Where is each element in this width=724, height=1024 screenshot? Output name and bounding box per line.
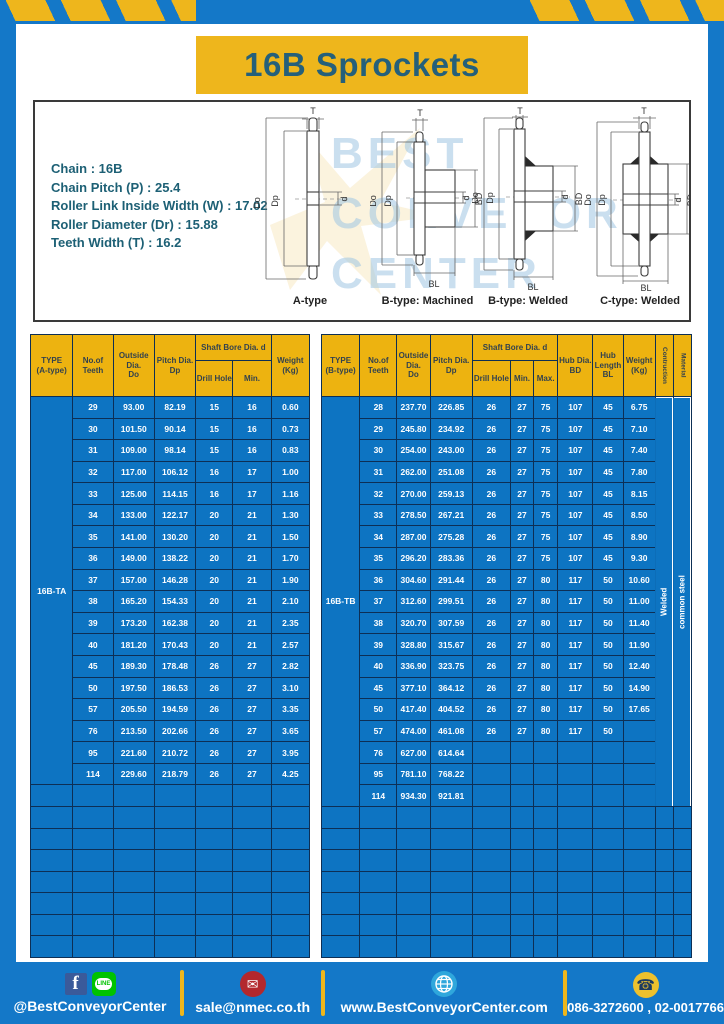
empty-cell [322,893,360,915]
svg-text:BD: BD [686,193,691,206]
empty-cell [322,806,360,828]
table-row: 32270.00259.13262775107458.15 [322,483,692,505]
header-pitch-dia: Pitch Dia.Dp [430,335,472,397]
header-min: Min. [510,361,533,397]
table-cell: 39 [360,634,397,656]
empty-cell [655,850,673,872]
empty-cell [472,850,510,872]
table-cell: 3.10 [271,677,309,699]
table-row: 57474.00461.0826278011750 [322,720,692,742]
empty-cell [31,785,73,807]
empty-cell [233,806,271,828]
svg-text:BL: BL [527,282,538,292]
svg-text:Do: Do [370,195,378,207]
header-shaft-bore-group: Shaft Bore Dia. d [472,335,557,361]
table-cell: 117 [558,634,593,656]
table-cell: 614.64 [430,742,472,764]
empty-cell [73,893,113,915]
empty-cell [558,850,593,872]
table-cell: 17 [233,483,271,505]
table-row: 30101.5090.1415160.73 [31,418,310,440]
table-cell: 291.44 [430,569,472,591]
table-cell: 27 [510,569,533,591]
table-cell: 76 [73,720,113,742]
empty-cell [31,850,73,872]
globe-icon[interactable] [431,971,457,997]
table-cell: 26 [196,742,233,764]
table-cell: 213.50 [113,720,154,742]
empty-cell [593,850,623,872]
empty-cell [510,871,533,893]
empty-cell [113,785,154,807]
empty-cell [397,936,430,958]
table-cell: 10.60 [623,569,655,591]
table-cell: 170.43 [154,634,195,656]
table-cell: 37 [73,569,113,591]
empty-cell [593,893,623,915]
empty-cell [593,828,623,850]
table-cell: 15 [196,397,233,419]
table-cell: 117 [558,591,593,613]
table-cell [593,785,623,807]
table-cell: 323.75 [430,655,472,677]
empty-cell [31,828,73,850]
empty-cell [113,871,154,893]
table-cell [534,763,558,785]
table-cell: 8.90 [623,526,655,548]
empty-cell [196,871,233,893]
empty-cell [360,936,397,958]
empty-cell [593,871,623,893]
footer-email-section: ✉ sale@nmec.co.th [184,962,321,1024]
page: 16B Sprockets BEST CONVEYOR CENTER Chain… [16,24,708,962]
empty-cell [113,850,154,872]
table-cell: 80 [534,591,558,613]
table-cell: 21 [233,634,271,656]
table-cell: 320.70 [397,612,430,634]
empty-cell [154,850,195,872]
table-cell: 101.50 [113,418,154,440]
svg-text:T: T [641,106,647,116]
table-cell [623,742,655,764]
table-cell: 287.00 [397,526,430,548]
table-cell: 29 [360,418,397,440]
line-icon[interactable]: LINE [92,972,116,996]
table-cell: 133.00 [113,504,154,526]
empty-cell [534,914,558,936]
email-address[interactable]: sale@nmec.co.th [195,999,310,1015]
table-cell: 98.14 [154,440,195,462]
table-cell: 7.10 [623,418,655,440]
empty-cell [360,914,397,936]
empty-cell [673,893,691,915]
table-cell: 107 [558,397,593,419]
table-cell: 2.35 [271,612,309,634]
empty-cell [397,914,430,936]
empty-cell [397,871,430,893]
table-cell: 146.28 [154,569,195,591]
empty-cell [673,828,691,850]
title-banner: 16B Sprockets [196,36,528,94]
table-cell: 50 [593,591,623,613]
empty-cell [558,893,593,915]
header-pitch-dia: Pitch Dia.Dp [154,335,195,397]
spec-line-chain: Chain : 16B [51,160,268,179]
spec-line-roller-width: Roller Link Inside Width (W) : 17.02 [51,197,268,216]
facebook-icon[interactable]: f [65,973,87,995]
drawing-label-c-type-welded: C-type: Welded [583,295,691,307]
phone-numbers[interactable]: 086-3272600 , 02-0017766 [567,1000,724,1015]
table-cell: 404.52 [430,699,472,721]
table-cell: 107 [558,440,593,462]
line-bubble: LINE [95,978,112,990]
table-cell: 26 [472,461,510,483]
table-cell: 45 [593,526,623,548]
table-cell: 1.16 [271,483,309,505]
table-cell: 80 [534,720,558,742]
empty-cell [593,806,623,828]
empty-cell [430,828,472,850]
table-cell: 38 [73,591,113,613]
table-cell: 1.90 [271,569,309,591]
table-cell: 0.83 [271,440,309,462]
empty-row [31,785,310,807]
table-cell: 32 [73,461,113,483]
drawing-label-a-type: A-type [250,295,370,307]
table-cell: 80 [534,634,558,656]
table-cell: 226.85 [430,397,472,419]
table-cell [510,763,533,785]
empty-cell [271,828,309,850]
empty-cell [655,828,673,850]
table-cell: 33 [360,504,397,526]
table-cell: 45 [593,461,623,483]
table-cell: 27 [233,655,271,677]
table-cell: 107 [558,418,593,440]
svg-text:d: d [673,197,683,202]
drawing-b-type-welded: T Do Dp d BD [472,106,584,307]
svg-text:Dp: Dp [485,192,495,204]
table-cell: 50 [593,677,623,699]
table-cell: 40 [73,634,113,656]
table-cell: 1.50 [271,526,309,548]
table-cell: 237.70 [397,397,430,419]
table-cell: 130.20 [154,526,195,548]
empty-cell [154,914,195,936]
table-a-type: TYPE(A-type) No.ofTeeth OutsideDia.Do Pi… [30,334,310,958]
table-cell: 27 [510,612,533,634]
empty-cell [430,914,472,936]
empty-cell [113,893,154,915]
svg-text:Do: Do [472,192,480,204]
table-cell: 474.00 [397,720,430,742]
table-cell: 278.50 [397,504,430,526]
table-cell: 114 [73,763,113,785]
table-cell: 26 [472,440,510,462]
hazard-stripes-right [524,0,724,21]
table-cell: 210.72 [154,742,195,764]
table-cell [558,742,593,764]
empty-cell [154,828,195,850]
empty-cell [623,936,655,958]
header-teeth: No.ofTeeth [360,335,397,397]
construction-cell: Welded [655,397,673,807]
table-cell: 31 [73,440,113,462]
empty-cell [430,806,472,828]
table-cell: 20 [196,634,233,656]
table-cell: 75 [534,483,558,505]
table-cell: 245.80 [397,418,430,440]
table-cell: 417.40 [397,699,430,721]
empty-cell [233,871,271,893]
empty-cell [593,936,623,958]
svg-text:BL: BL [640,283,651,292]
empty-row [322,871,692,893]
table-cell [558,785,593,807]
table-cell: 57 [73,699,113,721]
table-cell: 106.12 [154,461,195,483]
header-material: Material [673,335,691,397]
empty-cell [322,871,360,893]
empty-cell [360,828,397,850]
table-cell: 229.60 [113,763,154,785]
empty-cell [271,936,309,958]
table-cell: 45 [593,483,623,505]
empty-cell [623,914,655,936]
table-cell: 202.66 [154,720,195,742]
empty-cell [534,806,558,828]
table-cell: 117.00 [113,461,154,483]
table-row: 31262.00251.08262775107457.80 [322,461,692,483]
empty-cell [623,893,655,915]
spec-line-teeth-width: Teeth Width (T) : 16.2 [51,234,268,253]
empty-cell [655,806,673,828]
table-row: 38320.70307.592627801175011.40 [322,612,692,634]
table-cell: 27 [510,461,533,483]
table-cell: 336.90 [397,655,430,677]
table-cell: 50 [593,720,623,742]
table-cell: 627.00 [397,742,430,764]
table-cell: 80 [534,677,558,699]
table-cell: 173.20 [113,612,154,634]
empty-cell [154,871,195,893]
table-cell: 11.40 [623,612,655,634]
table-cell: 117 [558,699,593,721]
table-cell: 45 [73,655,113,677]
empty-cell [360,806,397,828]
empty-cell [397,893,430,915]
table-cell: 262.00 [397,461,430,483]
header-drill-hole: Drill Hole [472,361,510,397]
table-cell: 11.00 [623,591,655,613]
table-cell: 114.15 [154,483,195,505]
empty-row [322,893,692,915]
table-cell: 26 [472,655,510,677]
table-cell: 16 [196,461,233,483]
table-cell: 4.25 [271,763,309,785]
table-cell [534,785,558,807]
empty-cell [655,893,673,915]
table-cell: 1.00 [271,461,309,483]
table-cell: 117 [558,569,593,591]
empty-cell [196,806,233,828]
empty-cell [233,828,271,850]
table-row: 45377.10364.122627801175014.90 [322,677,692,699]
empty-cell [73,785,113,807]
table-cell: 29 [73,397,113,419]
svg-text:Dp: Dp [597,194,607,206]
table-cell: 9.30 [623,548,655,570]
empty-cell [233,914,271,936]
table-row: 34287.00275.28262775107458.90 [322,526,692,548]
table-a-header: TYPE(A-type) No.ofTeeth OutsideDia.Do Pi… [31,335,310,397]
table-cell: 80 [534,612,558,634]
empty-cell [31,806,73,828]
table-cell: 45 [593,397,623,419]
svg-text:Do: Do [252,197,262,209]
table-cell: 27 [510,548,533,570]
empty-cell [430,936,472,958]
table-cell: 205.50 [113,699,154,721]
empty-cell [360,871,397,893]
table-cell: 2.10 [271,591,309,613]
empty-cell [322,850,360,872]
empty-cell [233,936,271,958]
table-cell: 315.67 [430,634,472,656]
table-cell: 35 [73,526,113,548]
empty-cell [673,806,691,828]
table-cell: 95 [73,742,113,764]
table-cell: 11.90 [623,634,655,656]
table-cell: 221.60 [113,742,154,764]
svg-text:Do: Do [583,194,593,206]
empty-cell [397,828,430,850]
table-cell: 17.65 [623,699,655,721]
empty-cell [31,914,73,936]
table-cell: 75 [534,548,558,570]
empty-row [31,850,310,872]
table-cell: 141.00 [113,526,154,548]
empty-cell [196,914,233,936]
empty-cell [154,936,195,958]
drawing-b-type-machined: T Do Dp d BD [370,106,485,307]
table-cell: 189.30 [113,655,154,677]
table-cell: 80 [534,699,558,721]
table-cell: 27 [233,720,271,742]
social-handle[interactable]: @BestConveyorCenter [14,998,167,1014]
table-row: 32117.00106.1216171.00 [31,461,310,483]
table-cell: 82.19 [154,397,195,419]
website-url[interactable]: www.BestConveyorCenter.com [341,999,548,1015]
empty-row [31,936,310,958]
empty-cell [510,850,533,872]
table-cell: 117 [558,655,593,677]
table-cell: 27 [510,483,533,505]
table-row: 37157.00146.2820211.90 [31,569,310,591]
empty-cell [534,871,558,893]
table-cell: 307.59 [430,612,472,634]
table-cell: 26 [472,418,510,440]
table-cell: 377.10 [397,677,430,699]
table-cell: 921.81 [430,785,472,807]
table-cell [510,785,533,807]
table-cell: 8.50 [623,504,655,526]
empty-cell [154,893,195,915]
empty-cell [360,893,397,915]
table-cell: 75 [534,440,558,462]
table-cell: 138.22 [154,548,195,570]
table-cell [593,763,623,785]
table-cell: 45 [593,504,623,526]
email-icon[interactable]: ✉ [240,971,266,997]
table-cell: 26 [472,634,510,656]
table-cell: 26 [196,655,233,677]
header-max: Max. [534,361,558,397]
table-cell: 26 [472,397,510,419]
table-cell: 27 [510,504,533,526]
empty-cell [430,893,472,915]
table-cell [558,763,593,785]
spec-line-pitch: Chain Pitch (P) : 25.4 [51,179,268,198]
table-cell: 461.08 [430,720,472,742]
table-cell [510,742,533,764]
table-cell: 165.20 [113,591,154,613]
empty-cell [31,936,73,958]
table-row: 33125.00114.1516171.16 [31,483,310,505]
table-cell: 27 [510,699,533,721]
header-outside-dia: OutsideDia.Do [113,335,154,397]
empty-cell [233,850,271,872]
page-title: 16B Sprockets [244,46,480,84]
empty-cell [673,936,691,958]
empty-cell [233,785,271,807]
table-cell [472,763,510,785]
svg-text:d: d [560,194,570,199]
table-cell: 50 [593,612,623,634]
table-cell: 0.73 [271,418,309,440]
table-cell: 93.00 [113,397,154,419]
table-cell: 76 [360,742,397,764]
table-cell: 38 [360,612,397,634]
empty-cell [623,806,655,828]
empty-cell [196,850,233,872]
table-cell: 14.90 [623,677,655,699]
empty-cell [673,914,691,936]
table-cell: 45 [360,677,397,699]
table-row: 37312.60299.512627801175011.00 [322,591,692,613]
table-cell: 27 [233,742,271,764]
table-cell: 50 [73,677,113,699]
empty-cell [510,828,533,850]
empty-row [322,936,692,958]
empty-cell [322,914,360,936]
drawing-c-type-welded: T Do Dp d [583,106,691,307]
spec-drawing-box: BEST CONVEYOR CENTER Chain : 16B Chain P… [33,100,691,322]
table-cell: 30 [360,440,397,462]
empty-cell [196,893,233,915]
table-cell: 194.59 [154,699,195,721]
table-cell: 50 [593,655,623,677]
table-cell: 20 [196,548,233,570]
table-cell: 34 [73,504,113,526]
table-cell: 12.40 [623,655,655,677]
table-cell: 50 [593,699,623,721]
table-cell: 181.20 [113,634,154,656]
empty-cell [73,871,113,893]
table-b-type: TYPE(B-type) No.ofTeeth OutsideDia.Do Pi… [321,334,692,958]
phone-icon[interactable]: ☎ [633,972,659,998]
table-cell: 8.15 [623,483,655,505]
